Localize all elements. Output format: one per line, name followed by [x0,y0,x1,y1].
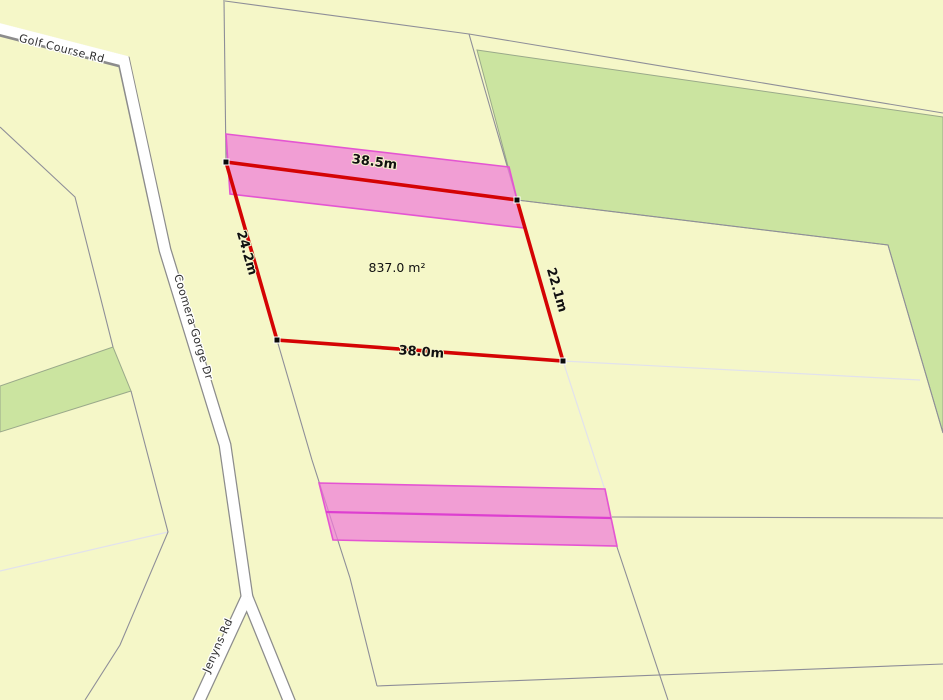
vertex-handle-nw[interactable] [223,159,229,165]
vertex-handle-sw[interactable] [274,337,280,343]
area-label: 837.0 m² [369,260,426,275]
map-canvas[interactable]: 38.5m 24.2m 22.1m 38.0m 837.0 m² Golf Co… [0,0,943,700]
vertex-handle-ne[interactable] [514,197,520,203]
cadastral-map: 38.5m 24.2m 22.1m 38.0m 837.0 m² Golf Co… [0,0,943,700]
vertex-handle-se[interactable] [560,358,566,364]
